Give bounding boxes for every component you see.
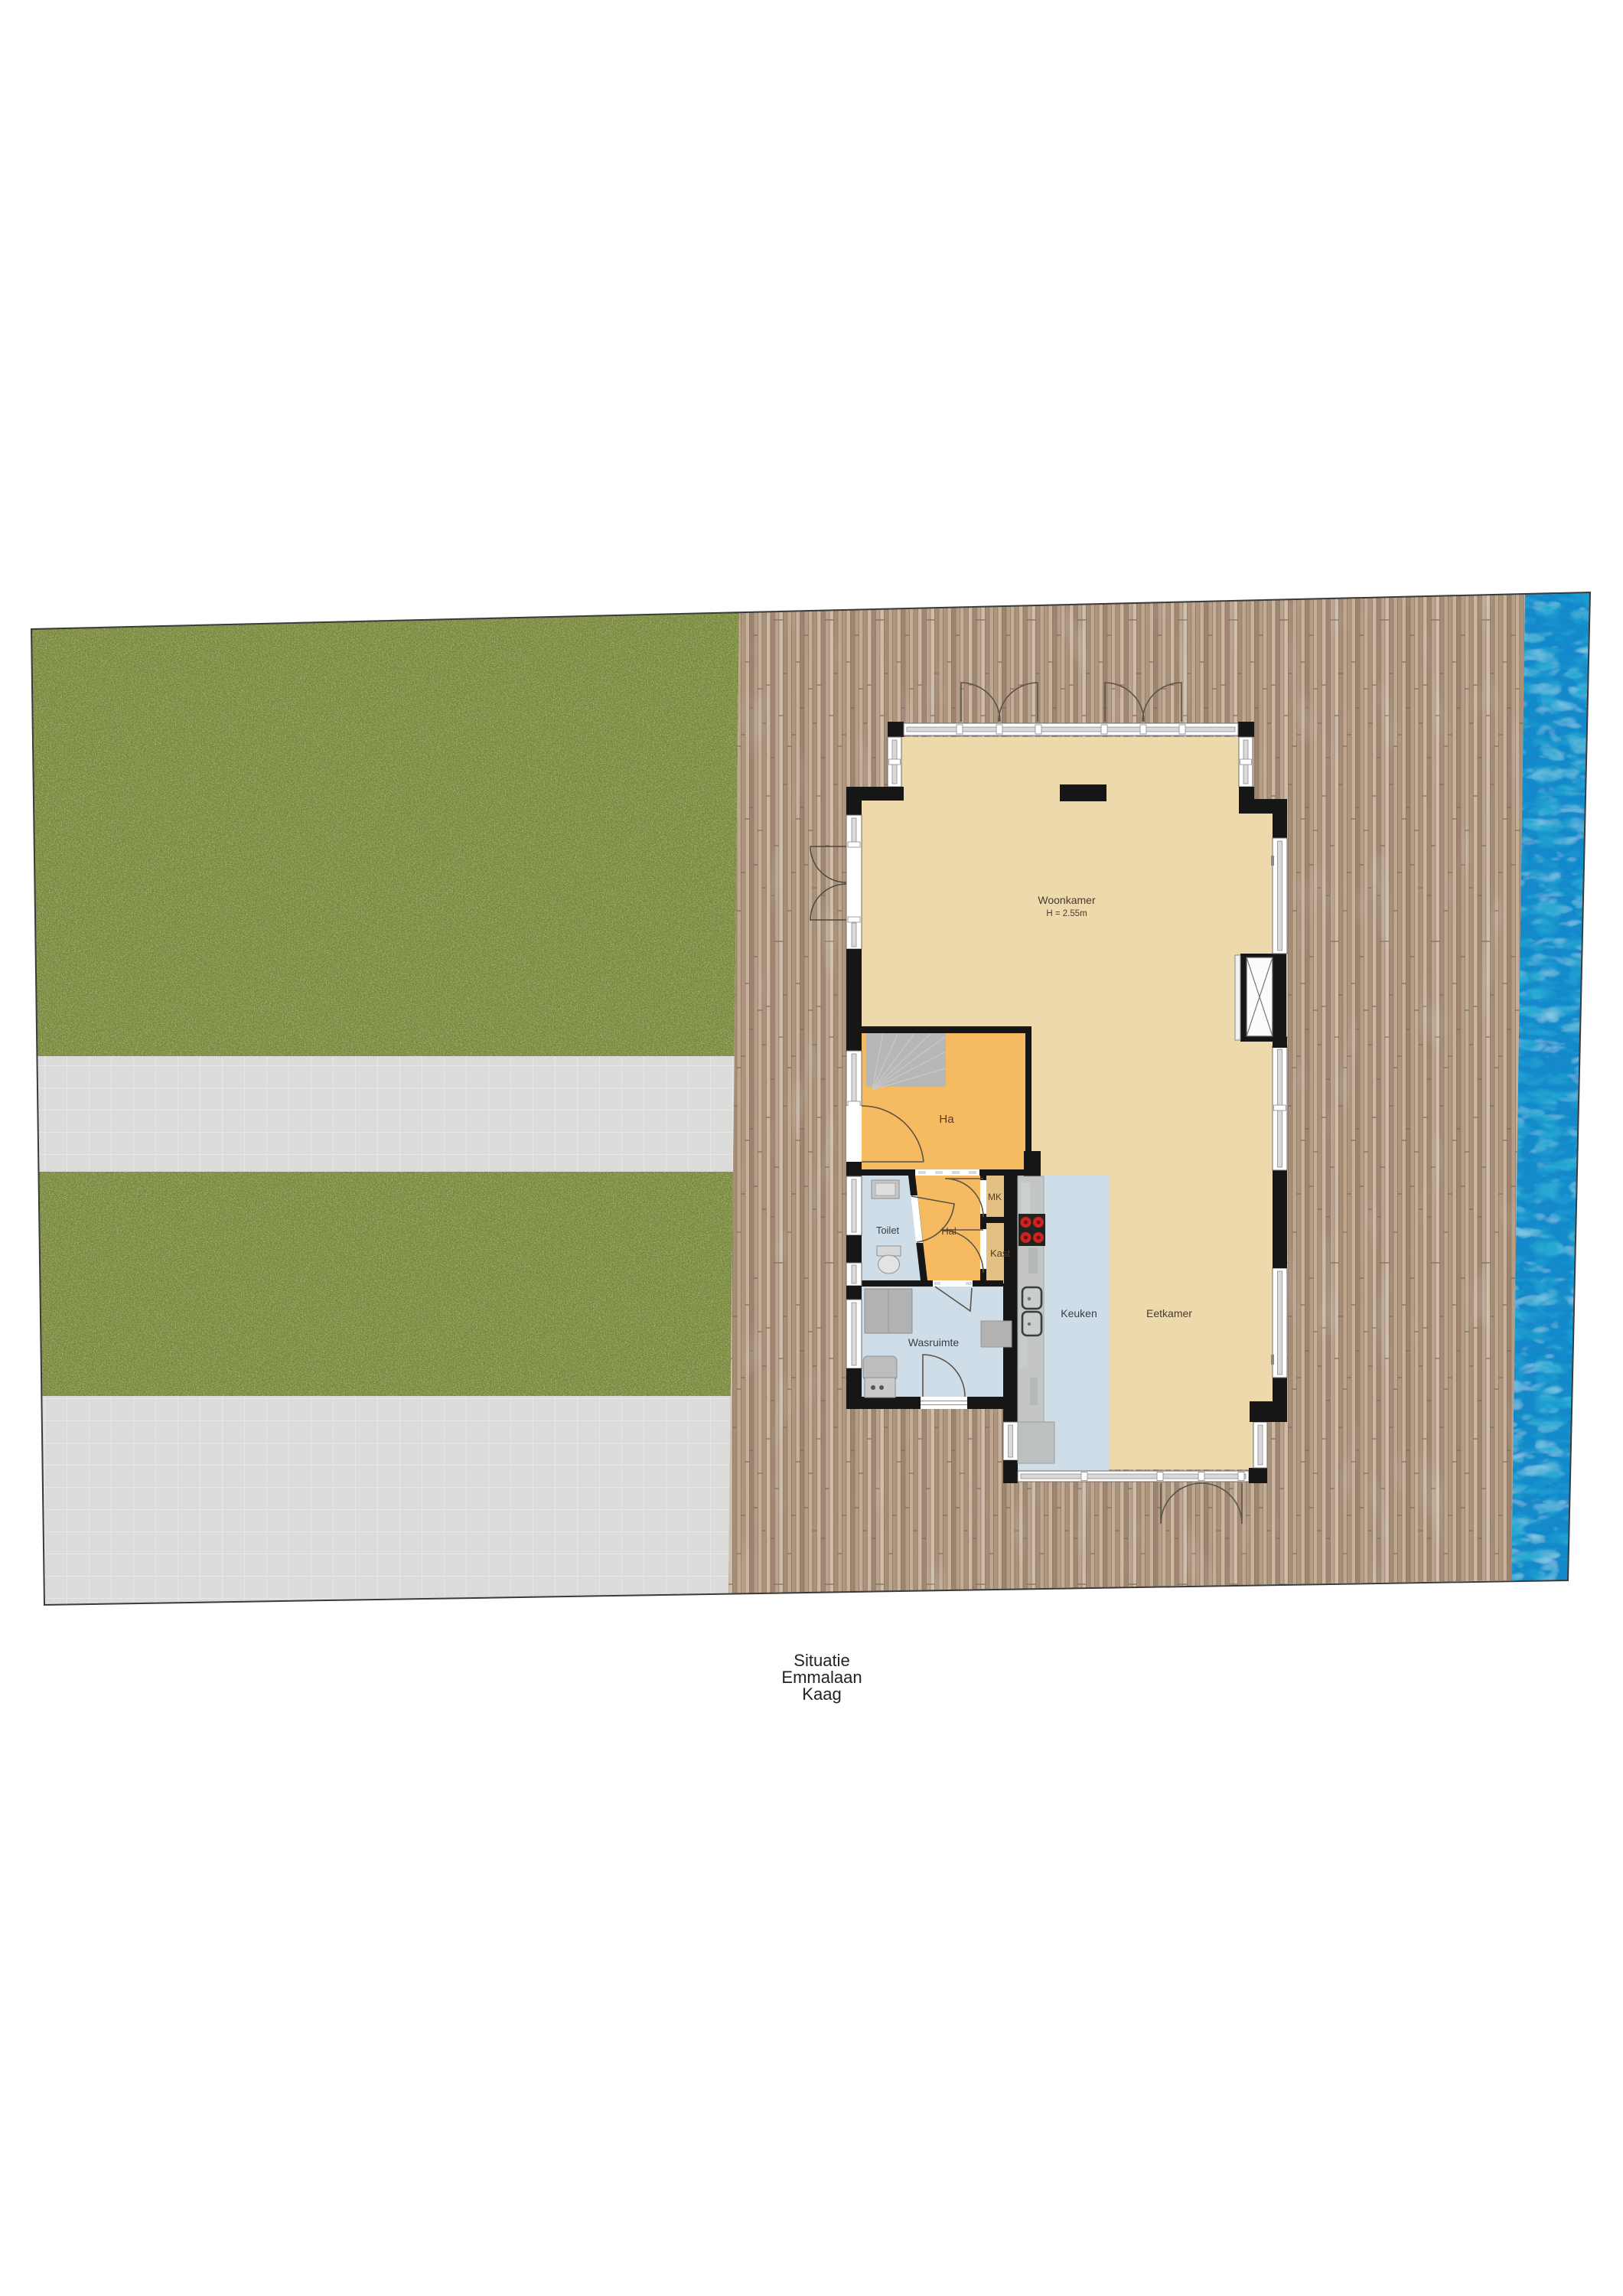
svg-text:Kaag: Kaag xyxy=(802,1684,841,1704)
svg-text:MK: MK xyxy=(988,1192,1002,1202)
svg-text:Toilet: Toilet xyxy=(876,1225,900,1236)
svg-text:Kast: Kast xyxy=(990,1247,1010,1259)
svg-text:Ha: Ha xyxy=(939,1113,954,1126)
svg-text:Woonkamer: Woonkamer xyxy=(1038,894,1096,906)
svg-text:H = 2.55m: H = 2.55m xyxy=(1046,909,1087,918)
svg-text:Eetkamer: Eetkamer xyxy=(1146,1307,1192,1319)
svg-text:Keuken: Keuken xyxy=(1061,1307,1097,1319)
svg-text:Wasruimte: Wasruimte xyxy=(908,1336,960,1349)
svg-text:Hal: Hal xyxy=(941,1225,957,1237)
